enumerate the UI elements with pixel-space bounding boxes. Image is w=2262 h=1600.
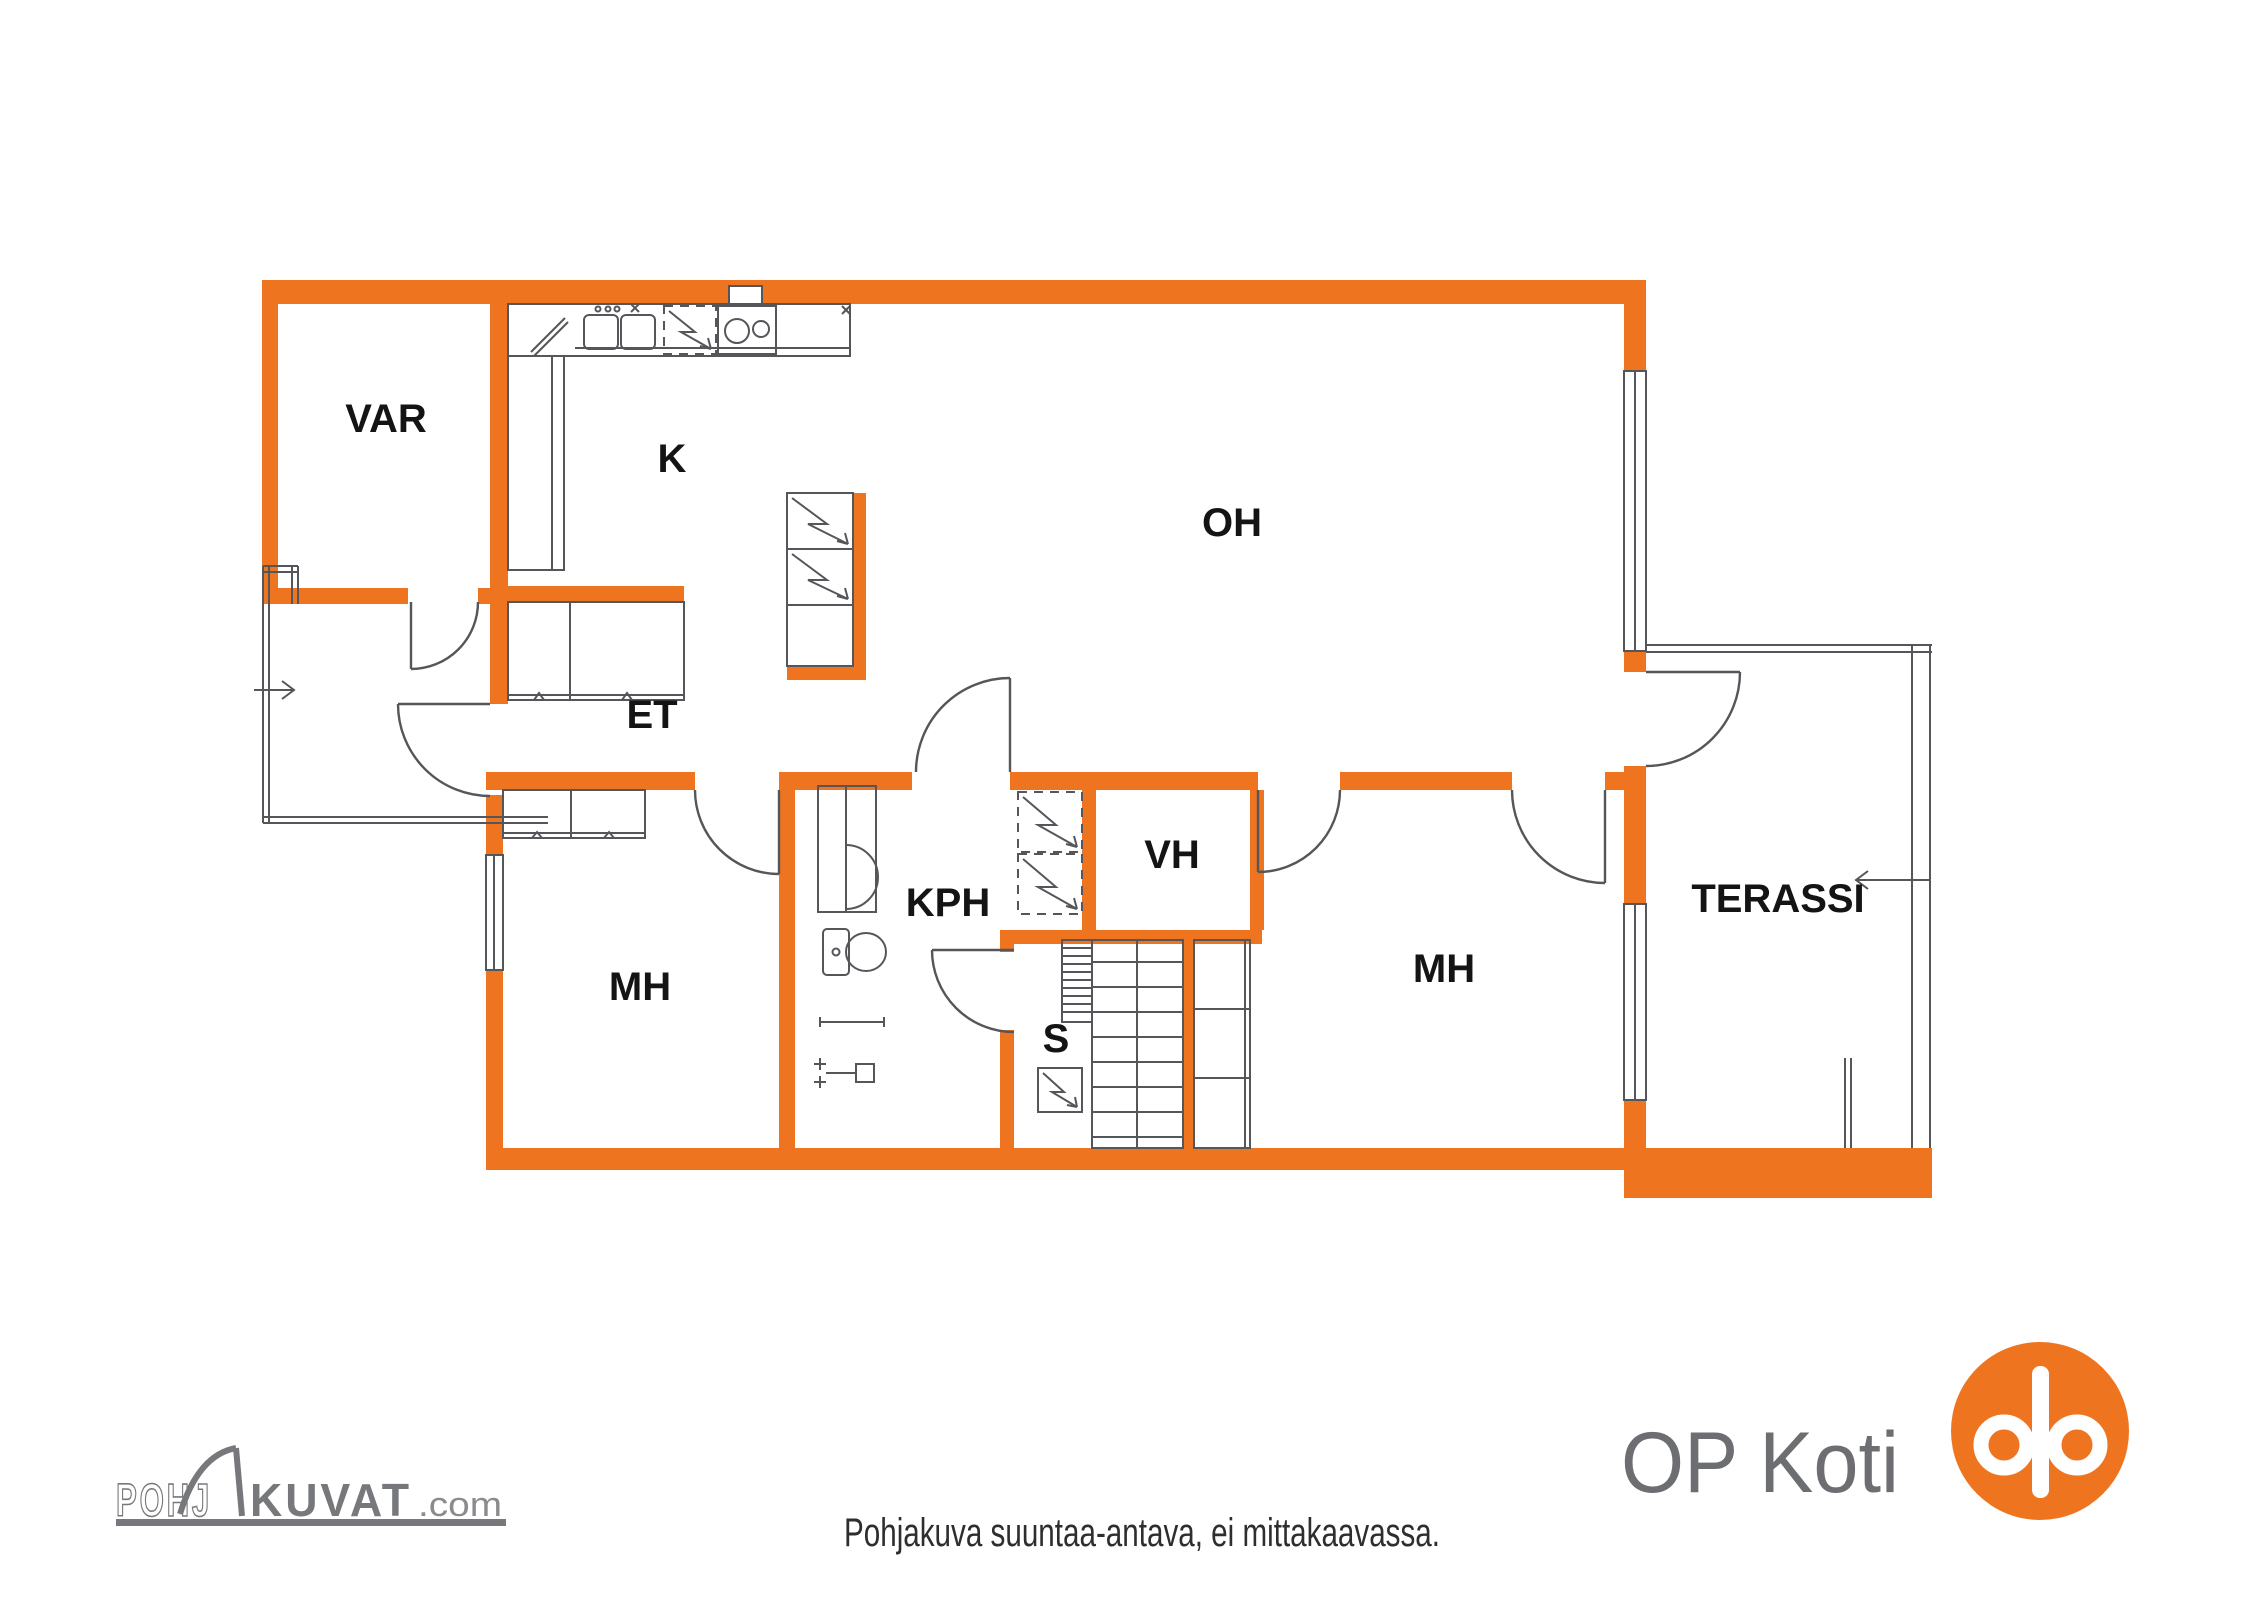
wall-sauna-left-bottom (1000, 1030, 1014, 1148)
wall-kph-vh (1082, 790, 1096, 938)
wall-kitchen-et (508, 586, 684, 602)
door-kph (916, 678, 1010, 772)
op-logo-icon (1951, 1342, 2129, 1520)
room-label-mh-right: MH (1413, 947, 1475, 991)
stairs (1062, 940, 1183, 1148)
mh-right-wardrobe (1194, 940, 1250, 1148)
wall-var-kitchen (490, 304, 508, 704)
floorplan-canvas: VAR K OH ET MH KPH VH S MH TERASSI Pohja… (0, 0, 2262, 1600)
door-var (411, 602, 478, 669)
pohjakuvat-logo: POHJ KUVAT .com (116, 1448, 506, 1526)
door-mh-right (1512, 790, 1605, 883)
wall-var-left (262, 280, 278, 604)
terrace-arrow-icon (1856, 871, 1930, 889)
wall-var-bottom-left (262, 588, 408, 604)
wall-right-mh (1624, 766, 1646, 904)
room-label-vh: VH (1144, 833, 1200, 877)
op-koti-text: OP Koti (1621, 1415, 1899, 1511)
door-terrace (1646, 672, 1740, 766)
room-label-mh-left: MH (609, 965, 671, 1009)
op-koti-logo: OP Koti (1621, 1342, 2129, 1520)
room-label-et: ET (626, 693, 677, 737)
wall-hall-a (486, 772, 695, 790)
window-mh-right (1624, 904, 1646, 1100)
counter-diagonal (534, 322, 568, 356)
entry-arrow-icon (254, 681, 294, 699)
wall-mh-kph (779, 790, 795, 1148)
kitchen-sink-icon (584, 304, 655, 349)
window-oh-right (1624, 371, 1646, 651)
wall-left-upper (486, 795, 503, 855)
mh-left-closet (503, 790, 645, 838)
wall-top (262, 280, 1646, 304)
sauna-stove-icon (1038, 1068, 1082, 1112)
door-mh-left (695, 790, 779, 874)
wall-bottom (486, 1148, 1632, 1170)
wall-right-low (1624, 1100, 1646, 1148)
fireplace-wall-right (853, 493, 866, 680)
wall-hall-c (1010, 772, 1258, 790)
toilet-icon (823, 929, 886, 975)
wall-hall-d (1340, 772, 1512, 790)
pohjakuvat-logo-suffix: .com (418, 1486, 502, 1524)
wall-hall-e (1605, 772, 1624, 790)
wall-left-lower (486, 970, 503, 1170)
shower-icon (818, 786, 878, 912)
door-vh (1258, 790, 1340, 872)
towel-rail-icon (820, 1017, 884, 1027)
doors (398, 602, 1740, 1032)
wall-right-top (1624, 304, 1646, 371)
pohjakuvat-logo-part2: KUVAT (250, 1474, 412, 1526)
disclaimer-text: Pohjakuva suuntaa-antava, ei mittakaavas… (844, 1511, 1440, 1555)
room-label-oh: OH (1202, 501, 1262, 545)
wall-stairs-divider (1183, 944, 1194, 1148)
et-wardrobe (508, 602, 684, 700)
walls (262, 280, 1932, 1198)
terrace-slab (1624, 1148, 1932, 1198)
shower-mixer-icon (814, 1058, 874, 1088)
fireplace-wall-bottom (787, 666, 866, 680)
pohjakuvat-underline (116, 1519, 506, 1526)
kitchen-counter-left (508, 356, 564, 570)
wall-vh-bottom (1000, 930, 1262, 944)
dishwasher-zigzag (669, 311, 711, 349)
floorplan-page: VAR K OH ET MH KPH VH S MH TERASSI Pohja… (0, 0, 2262, 1600)
room-label-k: K (658, 437, 687, 481)
wall-right-mid (1624, 651, 1646, 672)
pohjakuvat-logo-part1: POHJ (116, 1474, 212, 1526)
room-label-s: S (1043, 1017, 1070, 1061)
door-sauna (932, 950, 1014, 1032)
window-mh-left (486, 855, 503, 970)
fireplace (787, 493, 853, 666)
washer-icon (1018, 792, 1082, 914)
room-label-terassi: TERASSI (1691, 877, 1864, 921)
door-entry-et (398, 704, 490, 796)
room-label-var: VAR (345, 397, 427, 441)
room-label-kph: KPH (906, 881, 990, 925)
